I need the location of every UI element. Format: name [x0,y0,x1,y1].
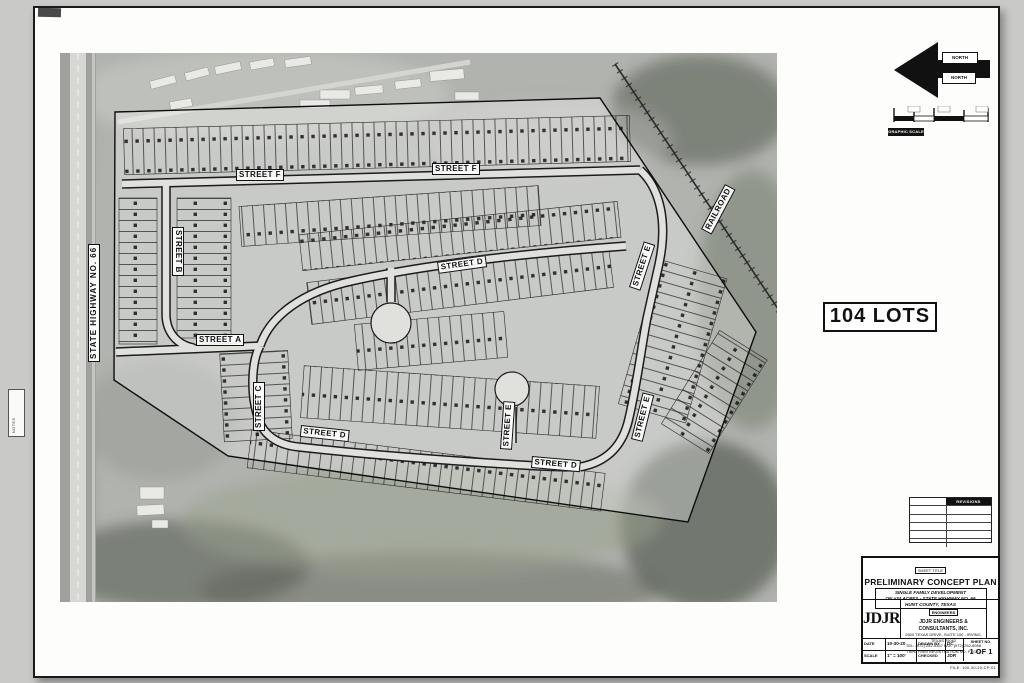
drawing-title: PRELIMINARY CONCEPT PLAN [863,577,998,587]
north-label-top: NORTH [942,52,978,64]
fields-section: DATE 10-30-20 DRAWN BY DC SCALE 1" = 100… [863,639,998,661]
revisions-header: REVISIONS [946,498,991,505]
edge-note-text: NOTES [12,417,16,433]
sheet-title-label: SHEET TITLE [915,567,946,574]
scale-label: SCALE [863,651,886,662]
north-arrow-icon [894,42,938,98]
revision-row [910,506,991,514]
north-arrow [886,36,994,106]
revisions-table: REVISIONS [909,497,992,543]
street-label-f-west: STREET F [236,169,284,181]
firm-logo: JDJR [863,600,901,638]
scale-bar-label: GRAPHIC SCALE [888,128,924,136]
plan-sheet [33,6,1000,678]
north-label-bottom: NORTH [942,72,976,84]
sheet-number-cell: SHEET NO. 1 OF 1 [964,639,998,661]
drawing-sheet-page: { "sheet": { "lots_text": "104 LOTS", "e… [0,0,1024,683]
firm-label: ENGINEERS [929,609,959,616]
file-number-note: FILE: 100-30-20-CP-01 [880,665,996,670]
checked-by-label: CHECKED BY [917,651,946,662]
revision-row [910,515,991,523]
date-label: DATE [863,639,886,650]
drawn-by-label: DRAWN BY [917,639,946,650]
street-label-f-east: STREET F [432,163,480,175]
street-label-b: STREET B [172,227,184,276]
street-label-c: STREET C [253,382,265,431]
firm-section-end [986,600,998,638]
revision-row [910,531,991,539]
lots-count-badge: 104 LOTS [823,302,937,332]
firm-info: ENGINEERS JDJR ENGINEERS & CONSULTANTS, … [901,600,986,638]
fields-grid: DATE 10-30-20 DRAWN BY DC SCALE 1" = 100… [863,639,964,661]
revision-row [910,523,991,531]
scan-artifact [38,8,61,18]
edge-note-box: NOTES [8,389,25,437]
sheet-no-value: 1 OF 1 [964,645,998,658]
firm-name: JDJR ENGINEERS & CONSULTANTS, INC. [901,619,986,632]
revisions-header-row: REVISIONS [910,498,991,506]
date-value: 10-30-20 [886,639,917,650]
drawn-by-value: DC [946,639,963,650]
title-block-header: SHEET TITLE PRELIMINARY CONCEPT PLAN SIN… [863,558,998,600]
firm-section: JDJR ENGINEERS JDJR ENGINEERS & CONSULTA… [863,600,998,639]
checked-by-value: JDR [946,651,963,662]
revision-row [910,539,991,546]
street-label-a: STREET A [196,334,244,346]
title-block: SHEET TITLE PRELIMINARY CONCEPT PLAN SIN… [861,556,1000,664]
scale-value: 1" = 100' [886,651,917,662]
highway-label: STATE HIGHWAY NO. 66 [88,244,100,362]
scale-bar [890,106,994,130]
